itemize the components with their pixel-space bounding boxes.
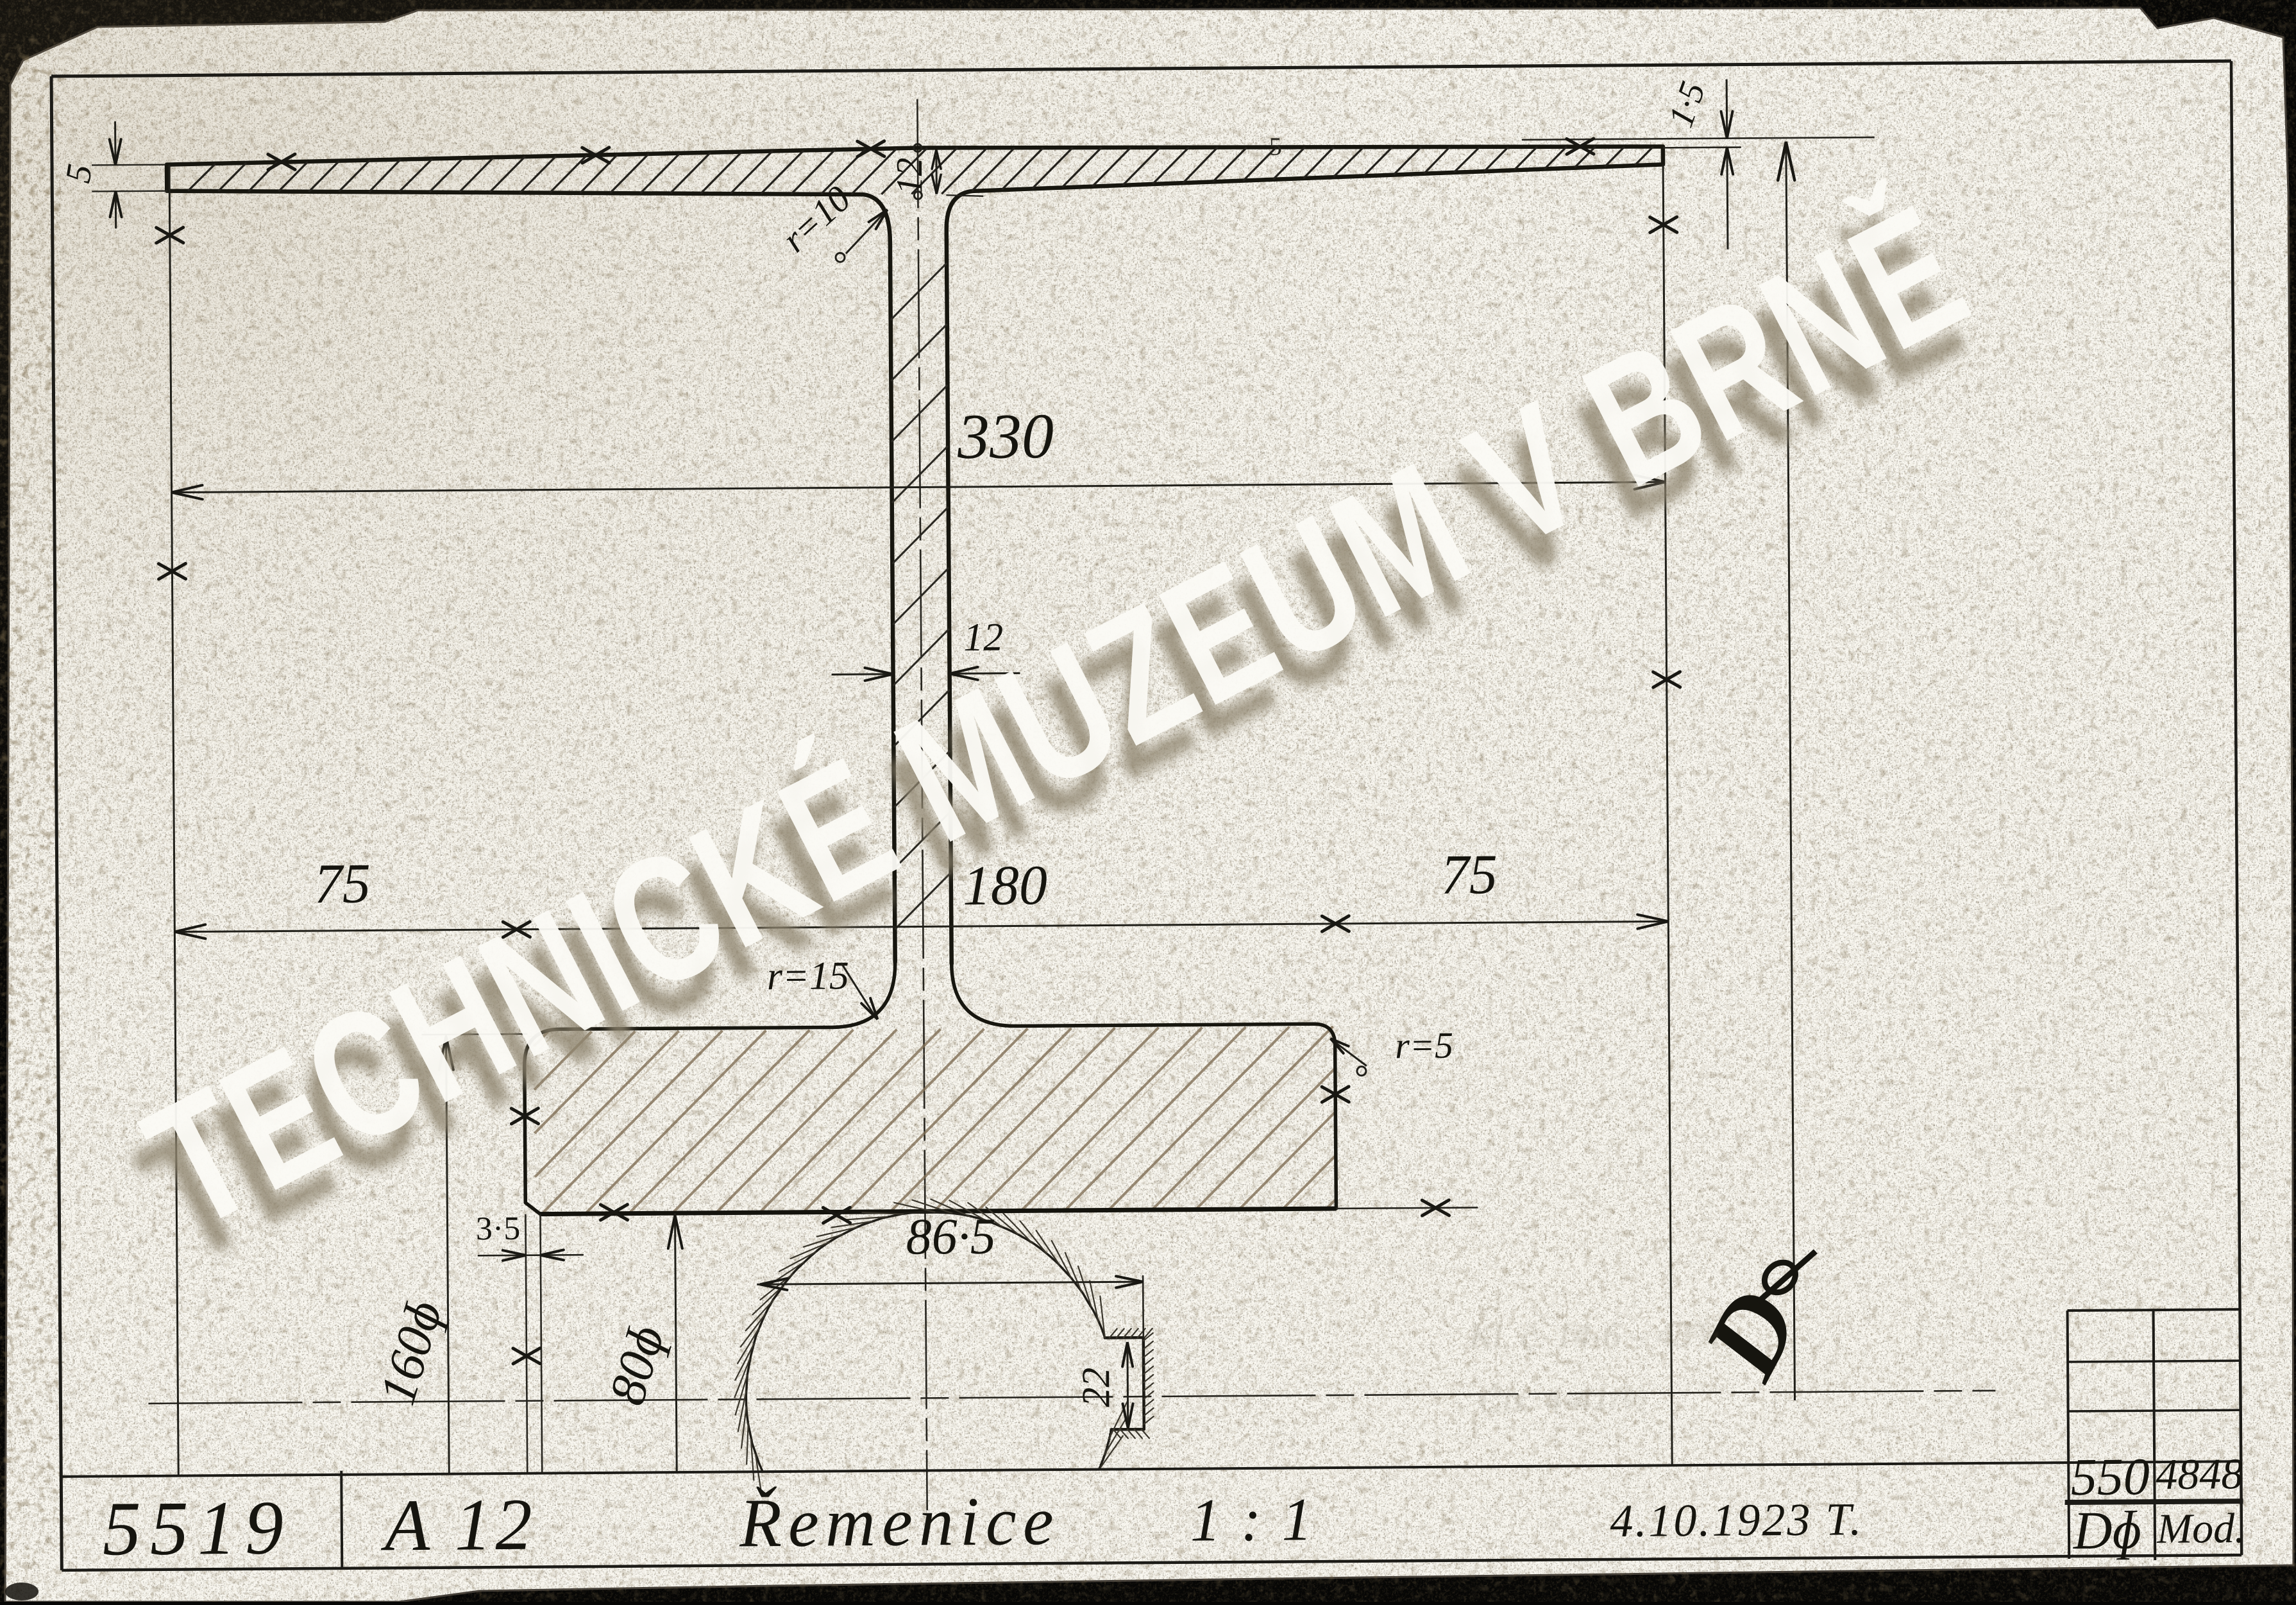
svg-text:86·5: 86·5 <box>906 1209 996 1266</box>
svg-text:3·5: 3·5 <box>476 1210 521 1247</box>
svg-text:1 : 1: 1 : 1 <box>1190 1485 1315 1554</box>
svg-text:Čis. 4-41/½: Čis. 4-41/½ <box>1478 1380 1647 1421</box>
svg-text:Dɸ: Dɸ <box>2073 1500 2142 1561</box>
svg-text:A 12: A 12 <box>380 1484 536 1567</box>
svg-text:550: 550 <box>2071 1447 2150 1506</box>
svg-text:22: 22 <box>1074 1367 1118 1407</box>
svg-text:Mod.: Mod. <box>2156 1505 2245 1552</box>
svg-text:5519: 5519 <box>102 1484 292 1571</box>
svg-text:Řemenice: Řemenice <box>739 1483 1061 1561</box>
svg-text:Kl. č. 14-6 – 43¾: Kl. č. 14-6 – 43¾ <box>1468 1315 1719 1357</box>
svg-text:330: 330 <box>957 400 1054 472</box>
svg-text:75: 75 <box>314 853 371 915</box>
svg-text:r=5: r=5 <box>1395 1024 1453 1067</box>
svg-text:4848: 4848 <box>2156 1449 2243 1499</box>
svg-text:4.10.1923 T.: 4.10.1923 T. <box>1610 1493 1863 1547</box>
svg-text:12: 12 <box>888 157 930 194</box>
svg-text:5: 5 <box>1269 132 1282 161</box>
svg-text:75: 75 <box>1440 844 1498 906</box>
